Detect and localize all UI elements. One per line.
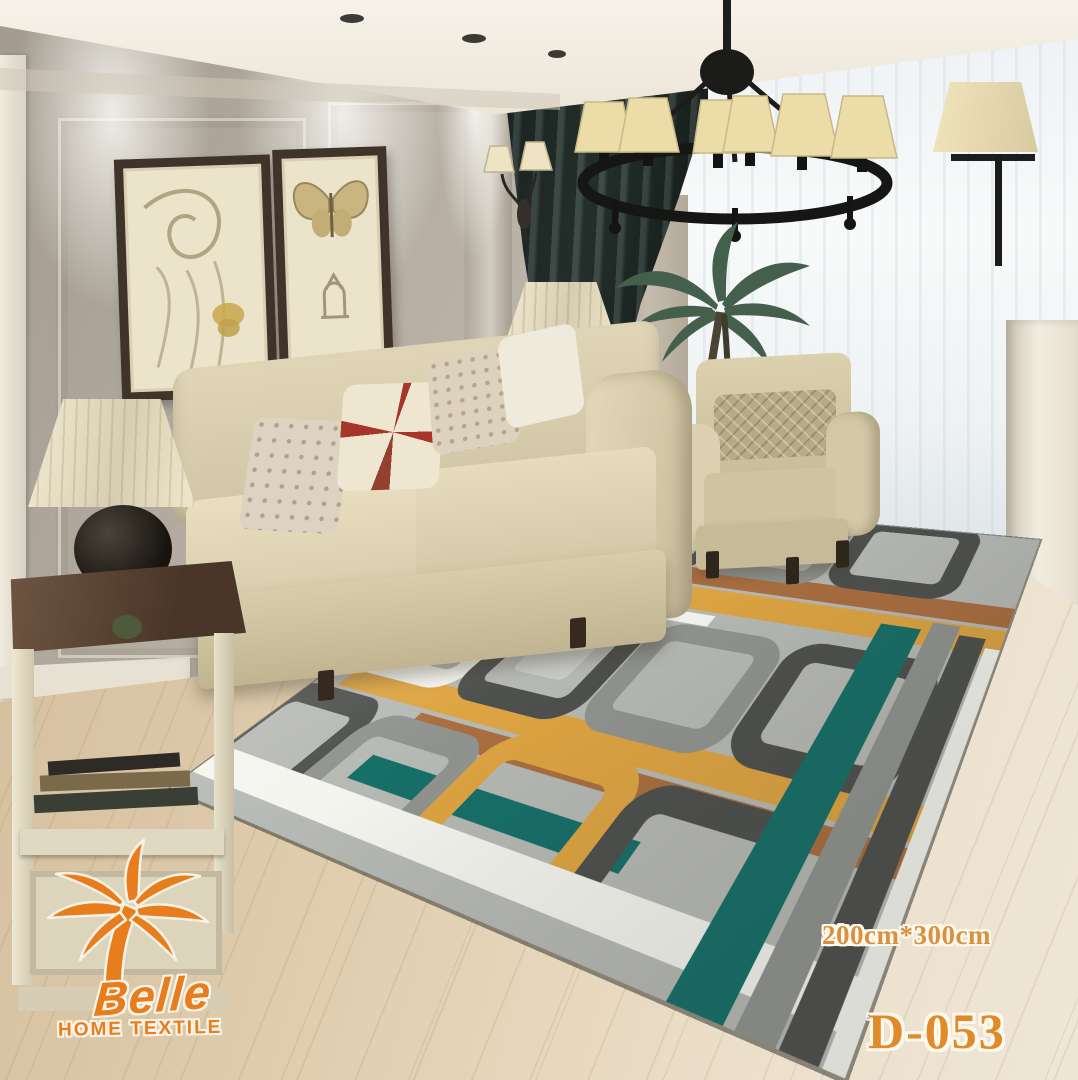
armchair-pillow xyxy=(714,389,836,461)
armchair-leg xyxy=(836,540,849,568)
table-decor xyxy=(112,615,142,639)
table-top xyxy=(6,561,246,653)
lamp-shade xyxy=(933,82,1038,152)
brand-tagline: HOME TEXTILE xyxy=(58,1016,258,1041)
size-value: 200cm*300cm xyxy=(822,920,991,951)
wall-sconce-icon xyxy=(478,122,573,250)
butterfly-icon xyxy=(281,155,384,362)
armchair-leg xyxy=(786,557,799,585)
brand-logo: Belle HOME TEXTILE xyxy=(22,828,252,1068)
lamp-shade xyxy=(28,399,196,507)
chandelier-icon xyxy=(555,0,925,245)
white-pillow xyxy=(497,322,586,430)
armchair-leg xyxy=(706,551,719,579)
lamp-pole xyxy=(995,154,1002,266)
lamp-arm xyxy=(951,154,1035,161)
armchair xyxy=(666,342,884,595)
recessed-light xyxy=(462,34,486,43)
product-photo-stage: Belle HOME TEXTILE Size: 160cm*220cm 180… xyxy=(0,0,1078,1080)
sofa-leg xyxy=(318,670,334,702)
model-code: D-053 xyxy=(868,1002,1006,1060)
recessed-light xyxy=(340,14,364,23)
sofa-leg xyxy=(570,617,586,649)
floor-lamp xyxy=(933,82,1063,282)
